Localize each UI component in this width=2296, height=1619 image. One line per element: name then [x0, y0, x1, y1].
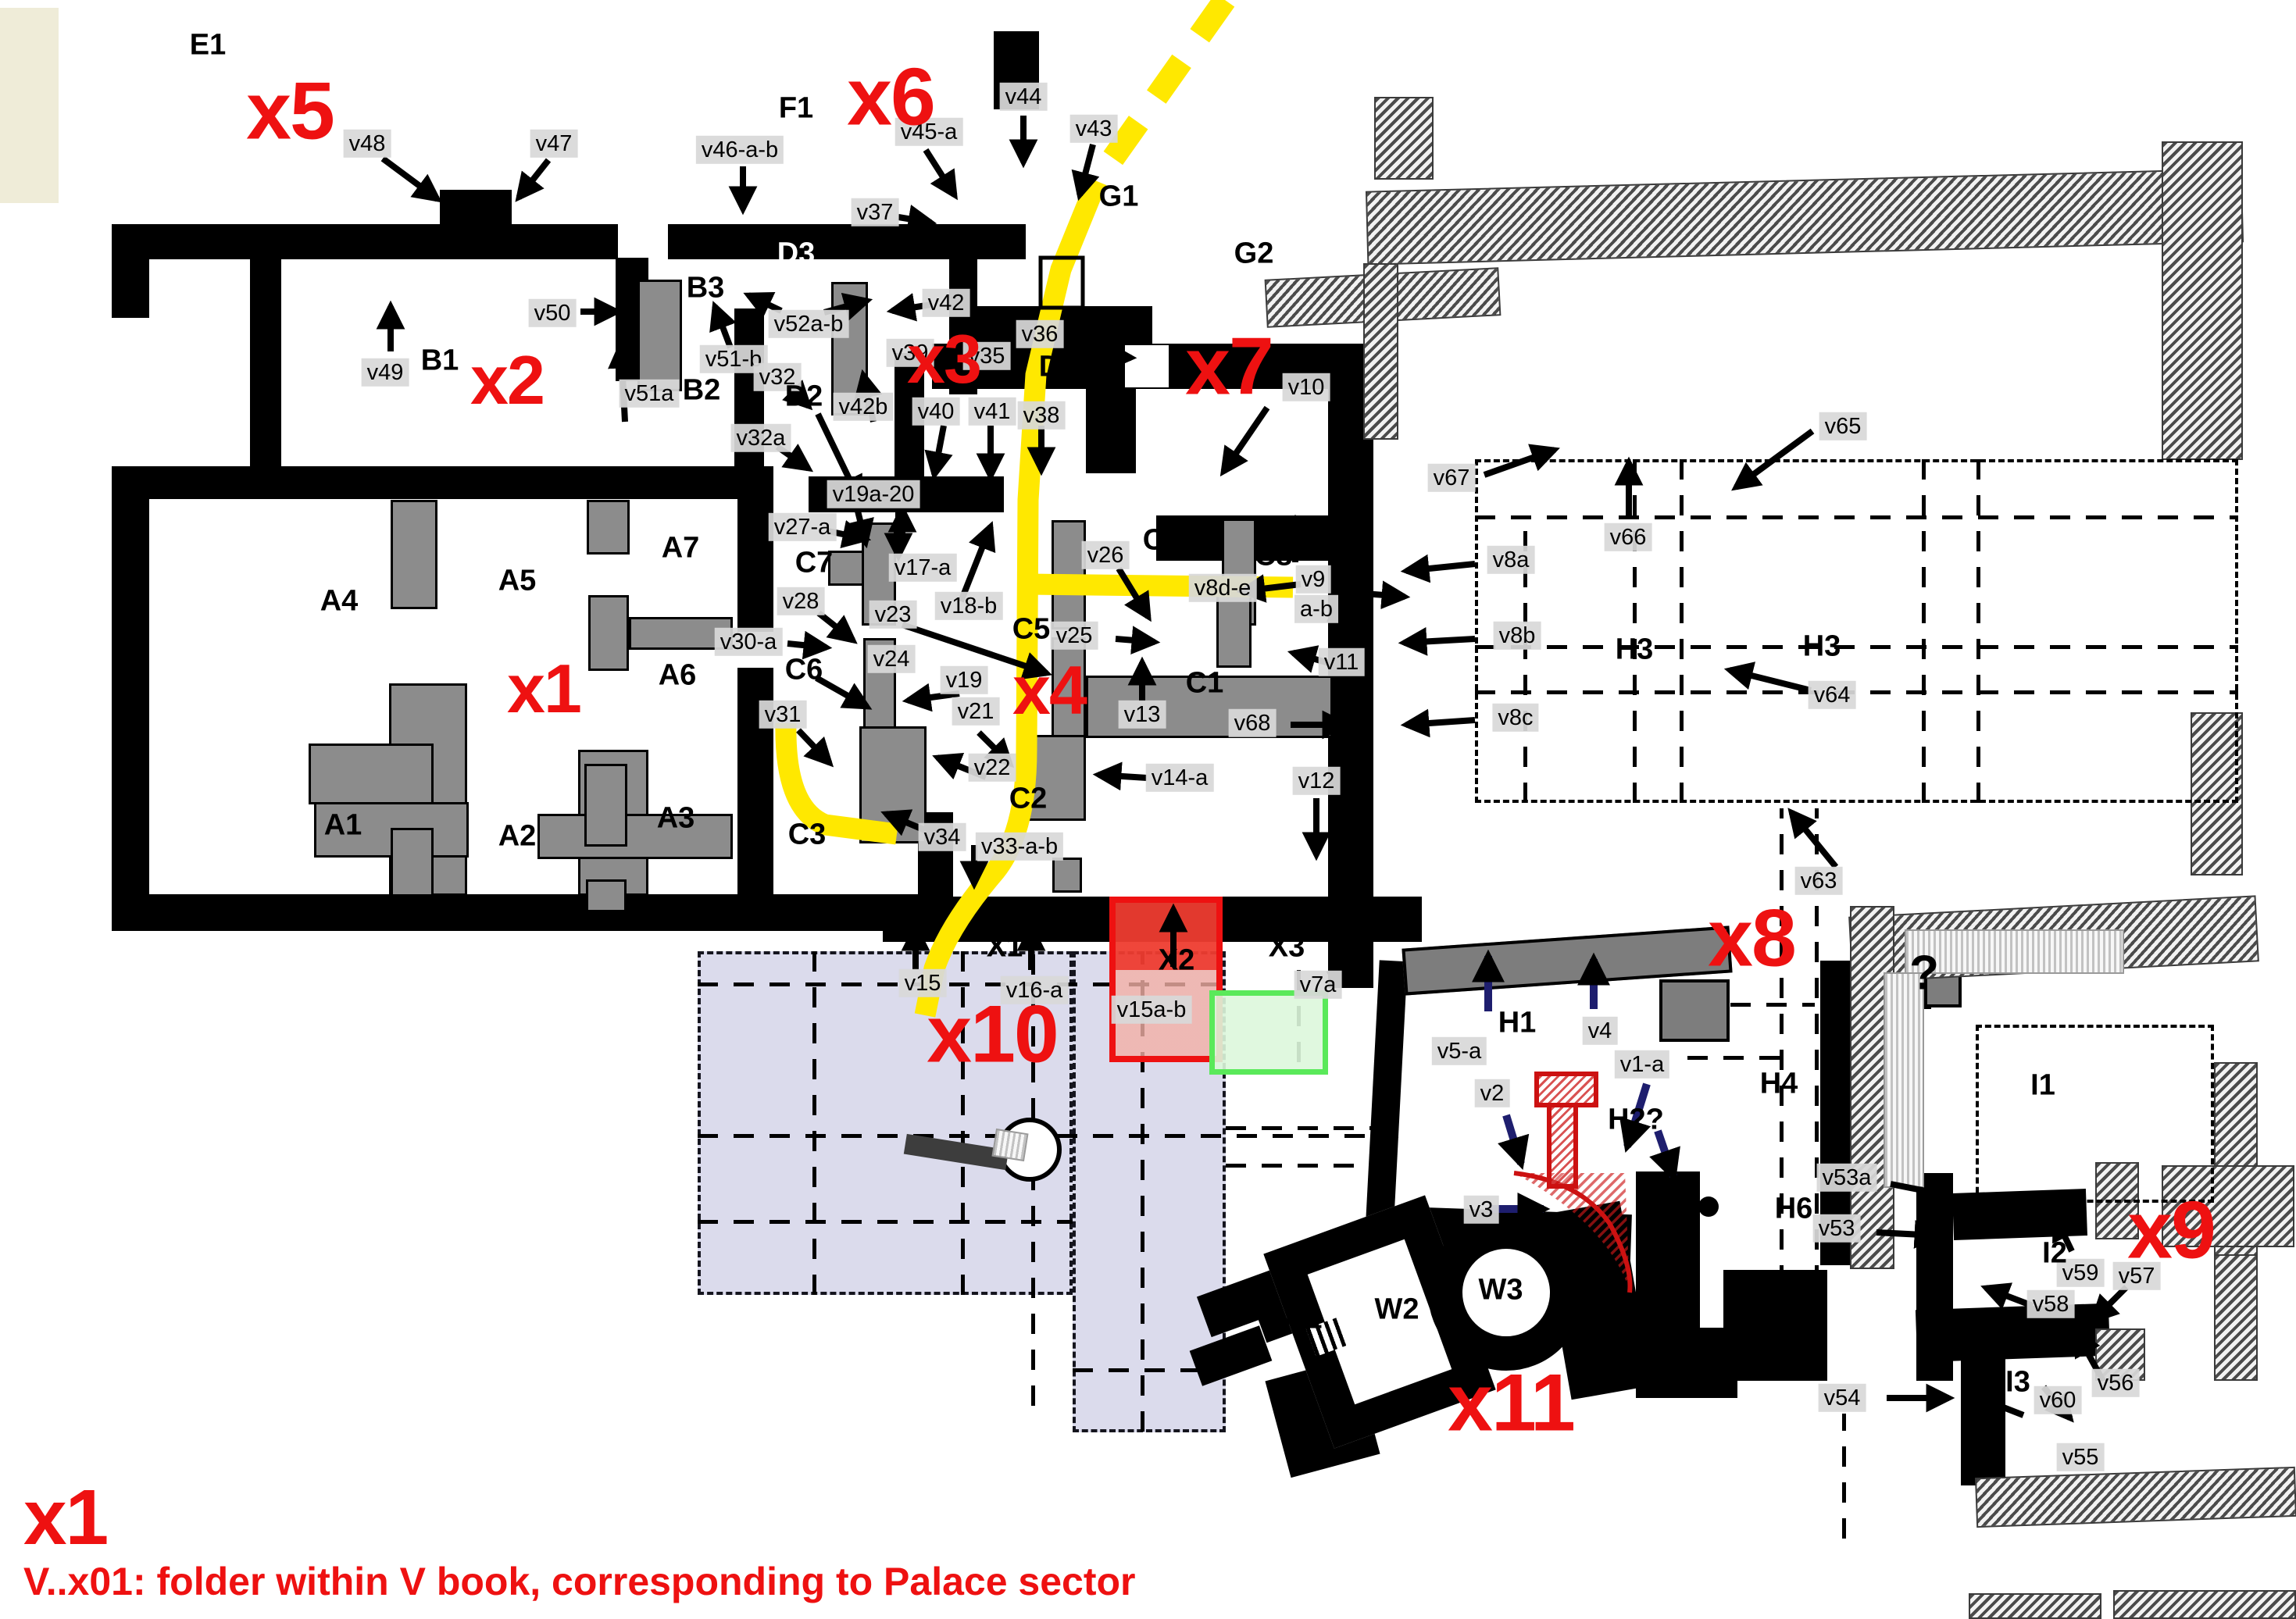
annotation-arrow-black-11 [748, 295, 781, 311]
room-label-C8: C8 [1255, 540, 1293, 573]
annotation-label-v11: v11 [1319, 648, 1365, 676]
annotation-label-v42b: v42b [834, 393, 894, 421]
room-label-C5: C5 [1012, 613, 1051, 647]
annotation-label-v48: v48 [344, 130, 391, 158]
annotation-arrow-black-64 [1986, 1288, 2033, 1306]
sector-label-x1: x1 [507, 649, 580, 729]
annotation-label-v56: v56 [2092, 1369, 2140, 1397]
room-label-A6: A6 [659, 659, 697, 693]
sector-label-x2: x2 [470, 341, 544, 420]
room-label-A7: A7 [662, 532, 700, 565]
annotation-arrow-black-16 [934, 426, 944, 475]
room-label-C4: C4 [1143, 524, 1181, 558]
sector-label-x8: x8 [1708, 893, 1795, 986]
annotation-label-v14-a: v14-a [1146, 764, 1214, 792]
room-label-F1: F1 [779, 92, 813, 126]
annotation-arrow-black-0 [383, 159, 437, 199]
annotation-label-v63: v63 [1795, 867, 1843, 895]
room-label-D3: D3 [777, 237, 816, 271]
sector-label-x11: x11 [1448, 1357, 1574, 1450]
room-label-H3: H3 [1803, 630, 1841, 664]
annotation-arrow-black-51 [1484, 450, 1555, 475]
annotation-arrow-black-28 [961, 526, 991, 601]
sector-label-x4: x4 [1012, 651, 1086, 730]
room-label-H1: H1 [1498, 1007, 1537, 1040]
annotation-arrow-black-68 [1223, 408, 1267, 472]
annotation-arrow-black-57 [1406, 720, 1475, 725]
room-label-A5: A5 [498, 565, 537, 598]
room-label-C7: C7 [795, 547, 834, 580]
annotation-arrow-black-36 [1364, 594, 1405, 597]
room-label-I3: I3 [2005, 1366, 2030, 1400]
room-label-G1: G1 [1099, 180, 1139, 214]
annotation-label-v25: v25 [1051, 622, 1098, 650]
room-label-B1: B1 [421, 344, 459, 378]
annotation-label-v8b: v8b [1494, 622, 1541, 650]
legend-sector-label: x1 [23, 1482, 1136, 1553]
sector-label-x9: x9 [2127, 1185, 2215, 1278]
annotation-label-v49: v49 [362, 358, 409, 387]
room-label-W3: W3 [1479, 1274, 1523, 1307]
annotation-label-v37: v37 [852, 198, 899, 226]
annotation-label-v3: v3 [1464, 1196, 1499, 1224]
annotation-label-v2: v2 [1475, 1079, 1510, 1107]
annotation-arrow-black-45 [1098, 775, 1147, 778]
annotation-label-v5-a: v5-a [1432, 1037, 1487, 1065]
annotation-label-v7a: v7a [1294, 971, 1342, 999]
arrows-navy [1488, 956, 1673, 1209]
annotation-label-v67: v67 [1428, 464, 1476, 492]
annotation-label-v8d-e: v8d-e [1189, 574, 1257, 602]
annotation-label-v38: v38 [1018, 401, 1066, 430]
annotation-label-v15a-b: v15a-b [1112, 996, 1192, 1024]
annotation-arrow-black-9 [715, 306, 730, 348]
room-label-H2?: H2? [1608, 1104, 1664, 1137]
annotation-label-v17-a: v17-a [889, 554, 957, 582]
room-label-A2: A2 [498, 820, 537, 854]
arrows-black [383, 116, 2126, 1418]
annotation-arrow-black-63 [2094, 1287, 2126, 1320]
annotation-label-v24: v24 [868, 645, 916, 673]
annotation-label-v60: v60 [2034, 1386, 2082, 1414]
annotation-arrow-black-14 [1086, 355, 1131, 358]
sector-label-x5: x5 [246, 66, 334, 159]
annotation-label-v34: v34 [919, 823, 966, 851]
annotation-arrow-black-58 [1791, 812, 1836, 867]
annotation-label-v36: v36 [1016, 320, 1064, 348]
annotation-arrow-black-59 [1891, 1184, 1950, 1196]
room-label-E1: E1 [190, 29, 226, 62]
room-label-D2: D2 [785, 380, 823, 414]
annotation-label-v47: v47 [530, 130, 578, 158]
annotation-label-v46-a-b: v46-a-b [696, 136, 784, 164]
annotation-label-v13: v13 [1119, 701, 1166, 729]
annotation-arrow-black-5 [1080, 144, 1093, 195]
annotation-arrow-black-26 [819, 613, 853, 640]
room-label-H4: H4 [1760, 1068, 1798, 1101]
room-label-I1: I1 [2030, 1069, 2055, 1103]
annotation-arrow-black-54 [1730, 670, 1811, 690]
annotation-label-v21: v21 [952, 697, 1000, 726]
annotation-arrow-black-53 [1736, 431, 1812, 487]
room-label-W1: W1 [1278, 1303, 1323, 1336]
annotation-label-v66: v66 [1605, 523, 1652, 551]
annotation-label-v32a: v32a [731, 424, 791, 452]
annotation-label-v44: v44 [1000, 83, 1048, 111]
annotation-arrow-black-6 [898, 217, 931, 223]
annotation-label-v40: v40 [912, 398, 960, 426]
annotation-label-v18-b: v18-b [935, 592, 1003, 620]
annotation-arrow-black-41 [798, 730, 830, 763]
annotation-label-v55: v55 [2057, 1443, 2105, 1471]
sector-label-x3: x3 [907, 319, 980, 399]
annotation-arrow-black-40 [816, 678, 867, 707]
room-label-H6: H6 [1775, 1193, 1813, 1226]
legend-text: V..x01: folder within V book, correspond… [23, 1559, 1136, 1604]
legend-caption: x1 V..x01: folder within V book, corresp… [23, 1482, 1136, 1604]
annotation-label-v9: v9 [1296, 565, 1331, 594]
sector-label-x6: x6 [847, 52, 934, 144]
room-label-B3: B3 [687, 272, 725, 305]
room-label-I2: I2 [2042, 1237, 2067, 1271]
room-label-X1: X1 [987, 931, 1023, 965]
annotation-label-v19a-20: v19a-20 [827, 480, 920, 508]
annotation-label-v53: v53 [1813, 1214, 1861, 1243]
annotation-label-v12: v12 [1293, 767, 1341, 795]
room-label-C6: C6 [785, 654, 823, 687]
annotation-label-v23: v23 [869, 601, 917, 629]
room-label-B2: B2 [683, 374, 721, 408]
annotation-label-v42: v42 [923, 289, 970, 317]
room-label-C2: C2 [1009, 783, 1048, 816]
annotation-label-v28: v28 [777, 587, 825, 615]
room-label-W2: W2 [1375, 1293, 1419, 1327]
annotation-arrow-black-31 [1119, 569, 1148, 617]
room-label-A1: A1 [324, 809, 362, 843]
annotation-label-v4: v4 [1583, 1017, 1618, 1045]
annotation-label-v58: v58 [2027, 1290, 2075, 1318]
annotation-arrow-black-39 [787, 644, 827, 647]
annotation-label-v10: v10 [1283, 373, 1330, 401]
annotation-label-v1-a: v1-a [1615, 1050, 1669, 1079]
annotation-label-v54: v54 [1819, 1384, 1866, 1412]
annotation-label-v52a-b: v52a-b [769, 310, 849, 338]
annotation-label-v51a: v51a [620, 380, 680, 408]
annotation-arrow-black-60 [1876, 1232, 1937, 1236]
annotation-label-v8a: v8a [1487, 546, 1535, 574]
annotation-label-v53a: v53a [1817, 1164, 1877, 1192]
annotation-label-v33-a-b: v33-a-b [976, 833, 1063, 861]
annotation-label-v68: v68 [1229, 709, 1277, 737]
annotation-arrow-black-55 [1406, 564, 1475, 571]
annotation-arrow-black-56 [1404, 639, 1475, 643]
room-label-C3: C3 [788, 818, 827, 852]
annotation-label-v30-a: v30-a [715, 628, 783, 656]
room-label-D1: D1 [1039, 351, 1077, 384]
room-label-G2: G2 [1234, 237, 1274, 271]
room-label-A3: A3 [657, 802, 695, 836]
annotation-label-v26: v26 [1082, 541, 1130, 569]
annotation-label-v41: v41 [969, 398, 1016, 426]
annotation-label-v65: v65 [1819, 412, 1867, 440]
annotation-label-v31: v31 [759, 701, 807, 729]
annotation-label-v19: v19 [941, 666, 988, 694]
annotation-arrow-black-32 [1116, 639, 1155, 642]
annotation-label-v43: v43 [1070, 115, 1118, 143]
sector-label-x7: x7 [1185, 321, 1273, 414]
annotation-label-v64: v64 [1809, 681, 1856, 709]
annotation-label-v50: v50 [529, 299, 577, 327]
annotation-arrow-navy-4 [1658, 1131, 1673, 1176]
annotation-arrow-black-1 [519, 160, 548, 198]
annotation-arrow-black-3 [926, 150, 955, 195]
annotation-arrow-navy-2 [1506, 1115, 1521, 1164]
room-label-X3: X3 [1269, 931, 1305, 965]
annotation-label-v27-a: v27-a [769, 513, 837, 541]
room-label-?: ? [1909, 946, 1939, 1001]
annotation-label-v8c: v8c [1492, 704, 1538, 732]
sector-label-x10: x10 [927, 989, 1058, 1082]
room-label-H3: H3 [1616, 633, 1654, 667]
room-label-A4: A4 [320, 585, 359, 619]
room-label-C1: C1 [1186, 667, 1224, 701]
site-plan: v48v47v46-a-bv45-av44v43v37v50v52a-bv42v… [0, 0, 2296, 1619]
annotation-label-a-b: a-b [1294, 595, 1338, 623]
annotation-label-v22: v22 [969, 754, 1016, 782]
room-label-X2: X2 [1159, 944, 1194, 978]
